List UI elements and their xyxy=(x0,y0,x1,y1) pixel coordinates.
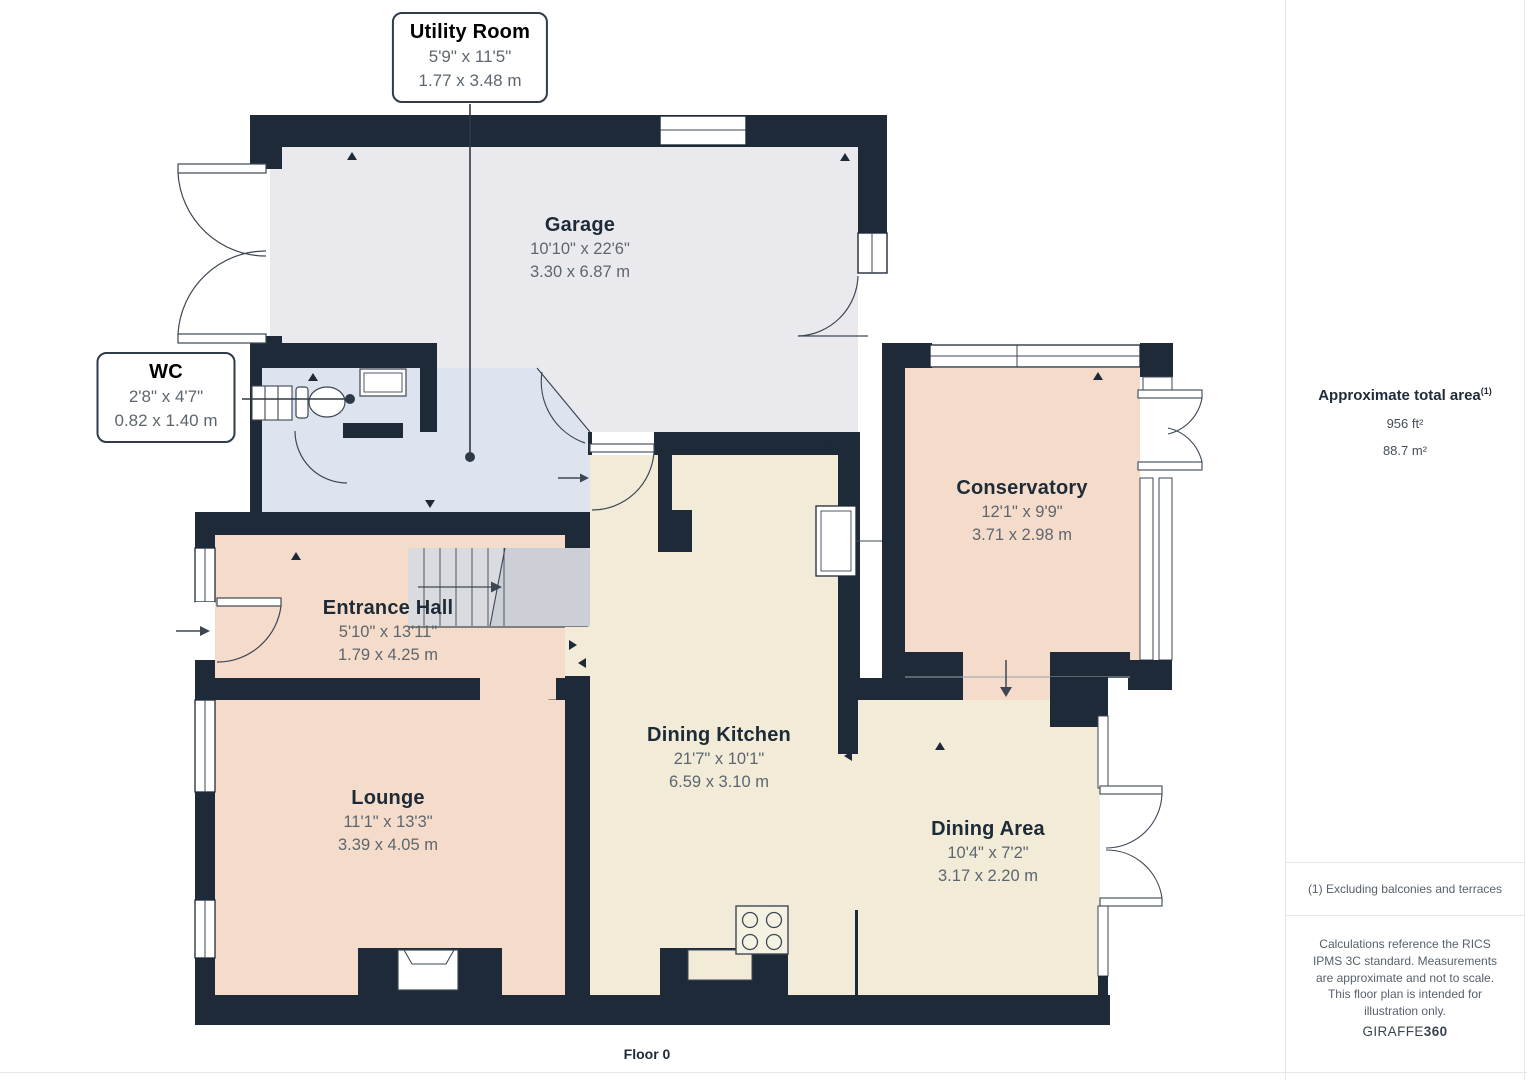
room-label-entrance-hall: Entrance Hall 5'10" x 13'11" 1.79 x 4.25… xyxy=(323,597,453,667)
room-callout-utility: Utility Room 5'9" x 11'5" 1.77 x 3.48 m xyxy=(392,12,548,103)
garage-double-door-icon xyxy=(178,164,266,343)
room-label-dining-kitchen: Dining Kitchen 21'7" x 10'1" 6.59 x 3.10… xyxy=(647,724,791,794)
room-label-lounge: Lounge 11'1" x 13'3" 3.39 x 4.05 m xyxy=(338,787,438,857)
room-dims-imperial: 12'1" x 9'9" xyxy=(956,502,1087,523)
giraffe360-logo: GIRAFFE360 xyxy=(1286,1024,1524,1039)
hall-window-icon xyxy=(195,548,215,602)
room-dims-metric: 3.17 x 2.20 m xyxy=(931,866,1045,887)
floorplan-drawing xyxy=(0,0,1285,1080)
room-dims-imperial: 10'10" x 22'6" xyxy=(530,239,630,260)
floor-label: Floor 0 xyxy=(624,1046,671,1062)
room-dims-imperial: 21'7" x 10'1" xyxy=(647,749,791,770)
room-title: Entrance Hall xyxy=(323,597,453,620)
conservatory-side-window-icon xyxy=(1140,478,1172,660)
total-area-block: Approximate total area(1) 956 ft² 88.7 m… xyxy=(1286,386,1524,458)
internal-window-icon xyxy=(816,506,882,576)
utility-wc-area xyxy=(195,368,590,535)
sink-icon xyxy=(360,369,406,396)
room-title: Dining Kitchen xyxy=(647,724,791,747)
room-title: Conservatory xyxy=(956,477,1087,500)
room-dims-metric: 3.71 x 2.98 m xyxy=(956,525,1087,546)
room-label-conservatory: Conservatory 12'1" x 9'9" 3.71 x 2.98 m xyxy=(956,477,1087,547)
total-area-footnote-marker: (1) xyxy=(1481,386,1492,396)
room-dims-imperial: 2'8" x 4'7" xyxy=(114,386,217,408)
total-area-imperial: 956 ft² xyxy=(1286,416,1524,431)
brand-suffix: 360 xyxy=(1424,1024,1448,1039)
page-bottom-divider xyxy=(0,1072,1527,1073)
fireplace-icon xyxy=(398,950,458,990)
total-area-metric: 88.7 m² xyxy=(1286,443,1524,458)
room-dims-metric: 3.39 x 4.05 m xyxy=(338,835,438,856)
garage-top-window-icon xyxy=(660,116,746,145)
room-label-garage: Garage 10'10" x 22'6" 3.30 x 6.87 m xyxy=(530,214,630,284)
room-title: Lounge xyxy=(338,787,438,810)
room-dims-metric: 0.82 x 1.40 m xyxy=(114,410,217,432)
total-area-title-text: Approximate total area xyxy=(1318,387,1481,404)
dining-french-doors-icon xyxy=(1100,786,1162,906)
room-dims-metric: 1.77 x 3.48 m xyxy=(410,70,530,92)
room-callout-wc: WC 2'8" x 4'7" 0.82 x 1.40 m xyxy=(96,352,235,443)
room-dims-imperial: 5'9" x 11'5" xyxy=(410,46,530,68)
room-dims-imperial: 11'1" x 13'3" xyxy=(338,812,438,833)
brand-name: GIRAFFE xyxy=(1362,1024,1423,1039)
room-title: Garage xyxy=(530,214,630,237)
conservatory-top-window-icon xyxy=(930,345,1140,367)
room-label-dining-area: Dining Area 10'4" x 7'2" 3.17 x 2.20 m xyxy=(931,818,1045,888)
info-sidebar: Approximate total area(1) 956 ft² 88.7 m… xyxy=(1285,0,1525,1080)
toilet-icon xyxy=(296,387,345,418)
room-dims-metric: 1.79 x 4.25 m xyxy=(323,645,453,666)
room-title: Utility Room xyxy=(410,21,530,44)
room-dims-metric: 3.30 x 6.87 m xyxy=(530,262,630,283)
room-dims-imperial: 10'4" x 7'2" xyxy=(931,843,1045,864)
room-dims-metric: 6.59 x 3.10 m xyxy=(647,772,791,793)
conservatory-french-doors-icon xyxy=(1138,390,1202,470)
total-area-title: Approximate total area(1) xyxy=(1286,386,1524,404)
room-dims-imperial: 5'10" x 13'11" xyxy=(323,622,453,643)
disclaimer-text: Calculations reference the RICS IPMS 3C … xyxy=(1286,936,1524,1020)
floorplan-page: Utility Room 5'9" x 11'5" 1.77 x 3.48 m … xyxy=(0,0,1527,1080)
room-title: WC xyxy=(114,361,217,384)
room-title: Dining Area xyxy=(931,818,1045,841)
hob-icon xyxy=(736,906,788,954)
garage-side-window-icon xyxy=(858,233,887,273)
footnote: (1) Excluding balconies and terraces xyxy=(1286,862,1524,916)
steps-icon xyxy=(252,386,292,420)
